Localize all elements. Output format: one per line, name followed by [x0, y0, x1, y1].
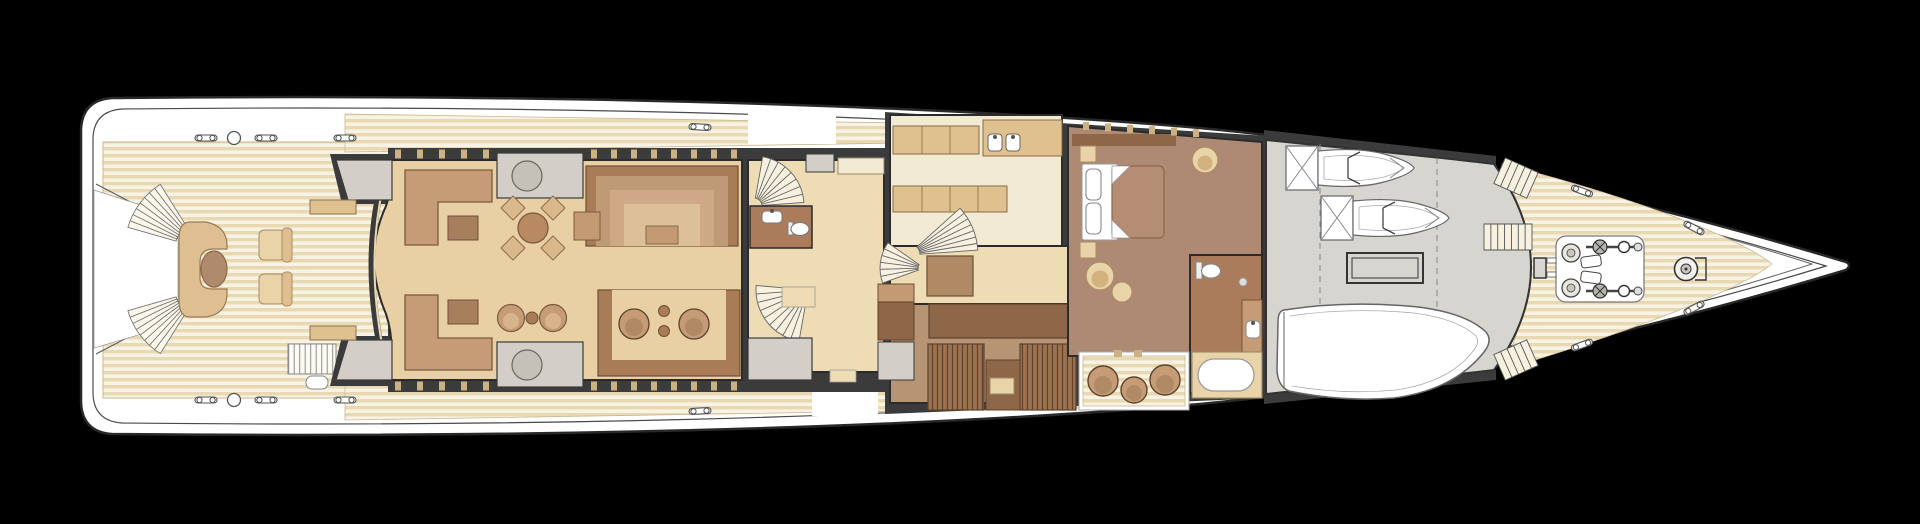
pantry-unit [927, 256, 973, 296]
salon-window-mullions-port-fwd [671, 150, 677, 159]
capstan-winch [1562, 244, 1580, 262]
lounge-shell-chair-seat [625, 318, 643, 336]
game-table [518, 213, 548, 243]
boarding-ladder-hatch [288, 344, 336, 374]
dining-centerpiece [646, 226, 678, 244]
mooring-cleat [689, 123, 711, 130]
salon-window-mullions-port-fwd [691, 150, 697, 159]
master-lounge-chair-seat [1092, 271, 1109, 288]
salon-window-mullions-port-aft [395, 150, 401, 159]
chain-ring [1619, 286, 1630, 297]
side-boarding-gap-port [748, 112, 836, 144]
deck-fitting [1547, 272, 1556, 277]
terrace-shell-chair-seat [1156, 375, 1174, 393]
chair-seat [259, 230, 285, 260]
master-window-mullions [1193, 129, 1199, 137]
stairwell-cabinet-top [878, 284, 914, 302]
chair-back [282, 228, 292, 262]
aft-deck-chair [259, 272, 292, 306]
mooring-cleat [195, 397, 217, 403]
mooring-cleat [195, 135, 217, 141]
salon-window-mullions-stbd-fwd [691, 382, 697, 391]
master-window-mullions [1083, 122, 1089, 130]
master-ottoman [1112, 282, 1132, 302]
lobby-counter [838, 158, 884, 174]
capstan-core [1567, 284, 1575, 292]
sink-faucet [1011, 135, 1015, 139]
corridor-floor [890, 246, 1068, 304]
salon-window-mullions-stbd-fwd [651, 382, 657, 391]
dressing-stool [990, 378, 1014, 394]
lounge-side-table [659, 306, 670, 317]
salon-window-mullions-port-fwd [631, 150, 637, 159]
deck-plan-svg [0, 0, 1920, 524]
salon-window-mullions-stbd-aft [483, 382, 489, 391]
terrace-shell-chair-seat [1094, 376, 1112, 394]
terrace-door-slot [1114, 350, 1122, 357]
mooring-cleat [689, 407, 711, 414]
corridor-sideboard [929, 304, 1071, 338]
salon-window-mullions-port-fwd [591, 150, 597, 159]
wardrobe-closet [928, 344, 984, 410]
terrace-door-slot [1134, 350, 1142, 357]
salon-window-mullions-stbd-fwd [631, 382, 637, 391]
salon-window-mullions-stbd-fwd [591, 382, 597, 391]
master-window-mullions [1171, 128, 1177, 136]
capstan-winch [1562, 279, 1580, 297]
mooring-cleat [255, 135, 277, 141]
salon-window-mullions-stbd-aft [461, 382, 467, 391]
salon-side-table-starboard [448, 300, 478, 324]
chain-locker-lid [1580, 255, 1601, 269]
master-window-mullions [1149, 126, 1155, 134]
salon-window-mullions-stbd-fwd [731, 382, 737, 391]
bow-capstan-pin [1685, 268, 1688, 271]
console-lamp-table [512, 350, 542, 380]
salon-window-mullions-port-fwd [711, 150, 717, 159]
salon-window-mullions-port-aft [461, 150, 467, 159]
nightstand [1080, 242, 1096, 258]
mooring-cleat [334, 135, 356, 141]
chain-ring [1619, 242, 1630, 253]
drink-table [526, 312, 538, 324]
master-window-mullions [1105, 123, 1111, 131]
salon-side-table-port [448, 216, 478, 240]
fender-locker [306, 376, 328, 389]
mooring-cleat [255, 397, 277, 403]
master-tv-cabinet [1072, 134, 1176, 146]
lobby-locker [748, 338, 812, 380]
deck-bench-port [310, 200, 356, 214]
salon-window-mullions-port-fwd [651, 150, 657, 159]
toilet-bowl [791, 223, 809, 236]
fairlead [228, 394, 241, 407]
salon-window-mullions-port-aft [417, 150, 423, 159]
stairs-up-landing [806, 154, 834, 172]
salon-window-mullions-stbd-aft [395, 382, 401, 391]
capstan-core [1567, 249, 1575, 257]
dining-side-cabinet [574, 212, 600, 240]
salon-window-mullions-port-fwd [731, 150, 737, 159]
nightstand [1080, 146, 1096, 162]
shower-drain [1239, 278, 1247, 286]
salon-window-mullions-stbd-fwd [611, 382, 617, 391]
salon-window-mullions-stbd-fwd [711, 382, 717, 391]
salon-window-mullions-port-aft [483, 150, 489, 159]
lounge-shell-chair-seat [685, 318, 703, 336]
master-armchair-seat [1198, 156, 1213, 171]
bathtub [1198, 359, 1254, 391]
chain-stopper [1634, 287, 1642, 295]
master-window-mullions [1127, 125, 1133, 133]
salon-window-mullions-stbd-aft [439, 382, 445, 391]
stairs-down-landing [782, 287, 815, 307]
salon-window-mullions-port-aft [439, 150, 445, 159]
master-bed [1082, 164, 1164, 240]
galley-cabinets-aft [893, 126, 979, 154]
swivel-chair-seat [545, 313, 561, 329]
bow-sprit-tab [1534, 258, 1546, 278]
aft-deck-chair [259, 228, 292, 262]
salon-window-mullions-port-fwd [611, 150, 617, 159]
day-head [750, 206, 812, 248]
stairwell-cabinet-low [878, 342, 914, 380]
swivel-chair-seat [503, 313, 519, 329]
deck-fitting [1547, 258, 1556, 263]
sink-faucet [993, 135, 997, 139]
stairwell-cabinet-mid [878, 302, 914, 340]
bed-pillow [1086, 203, 1101, 234]
sink-faucet [1251, 321, 1255, 325]
terrace-stool-seat [1126, 385, 1142, 401]
chair-back [282, 272, 292, 306]
mooring-cleat [334, 397, 356, 403]
yacht-deck-plan [0, 0, 1920, 524]
side-door-threshold [830, 370, 856, 382]
salon-window-mullions-stbd-aft [417, 382, 423, 391]
bed-duvet [1112, 166, 1164, 238]
console-lamp-table [512, 161, 542, 191]
chain-stopper [1634, 243, 1642, 251]
foredeck-steps-center [1484, 224, 1532, 250]
chain-locker-lid [1580, 271, 1601, 285]
fairlead [228, 132, 241, 145]
toilet-bowl [1202, 264, 1221, 278]
salon-window-mullions-stbd-fwd [671, 382, 677, 391]
deck-bench-starboard [310, 326, 356, 340]
aft-cocktail-table [201, 251, 227, 287]
chair-seat [259, 274, 285, 304]
sink-faucet [770, 209, 774, 213]
bed-pillow [1086, 169, 1101, 200]
lounge-side-table [659, 326, 670, 337]
